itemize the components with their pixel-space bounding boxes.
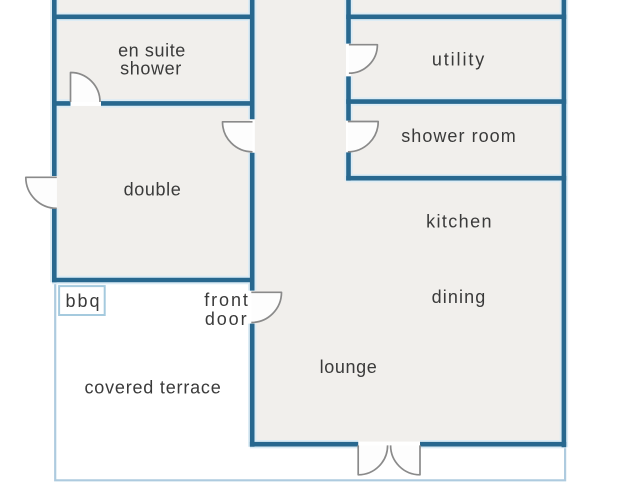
svg-text:kitchen: kitchen xyxy=(426,211,493,231)
svg-text:front: front xyxy=(204,290,250,310)
svg-text:bbq: bbq xyxy=(65,291,101,311)
svg-text:lounge: lounge xyxy=(320,357,378,377)
svg-text:dining: dining xyxy=(432,287,487,307)
svg-text:shower room: shower room xyxy=(401,126,517,146)
svg-text:utility: utility xyxy=(432,50,486,70)
svg-text:door: door xyxy=(205,309,249,329)
svg-text:double: double xyxy=(124,180,182,200)
svg-text:covered terrace: covered terrace xyxy=(84,377,221,397)
svg-text:shower: shower xyxy=(120,58,182,78)
